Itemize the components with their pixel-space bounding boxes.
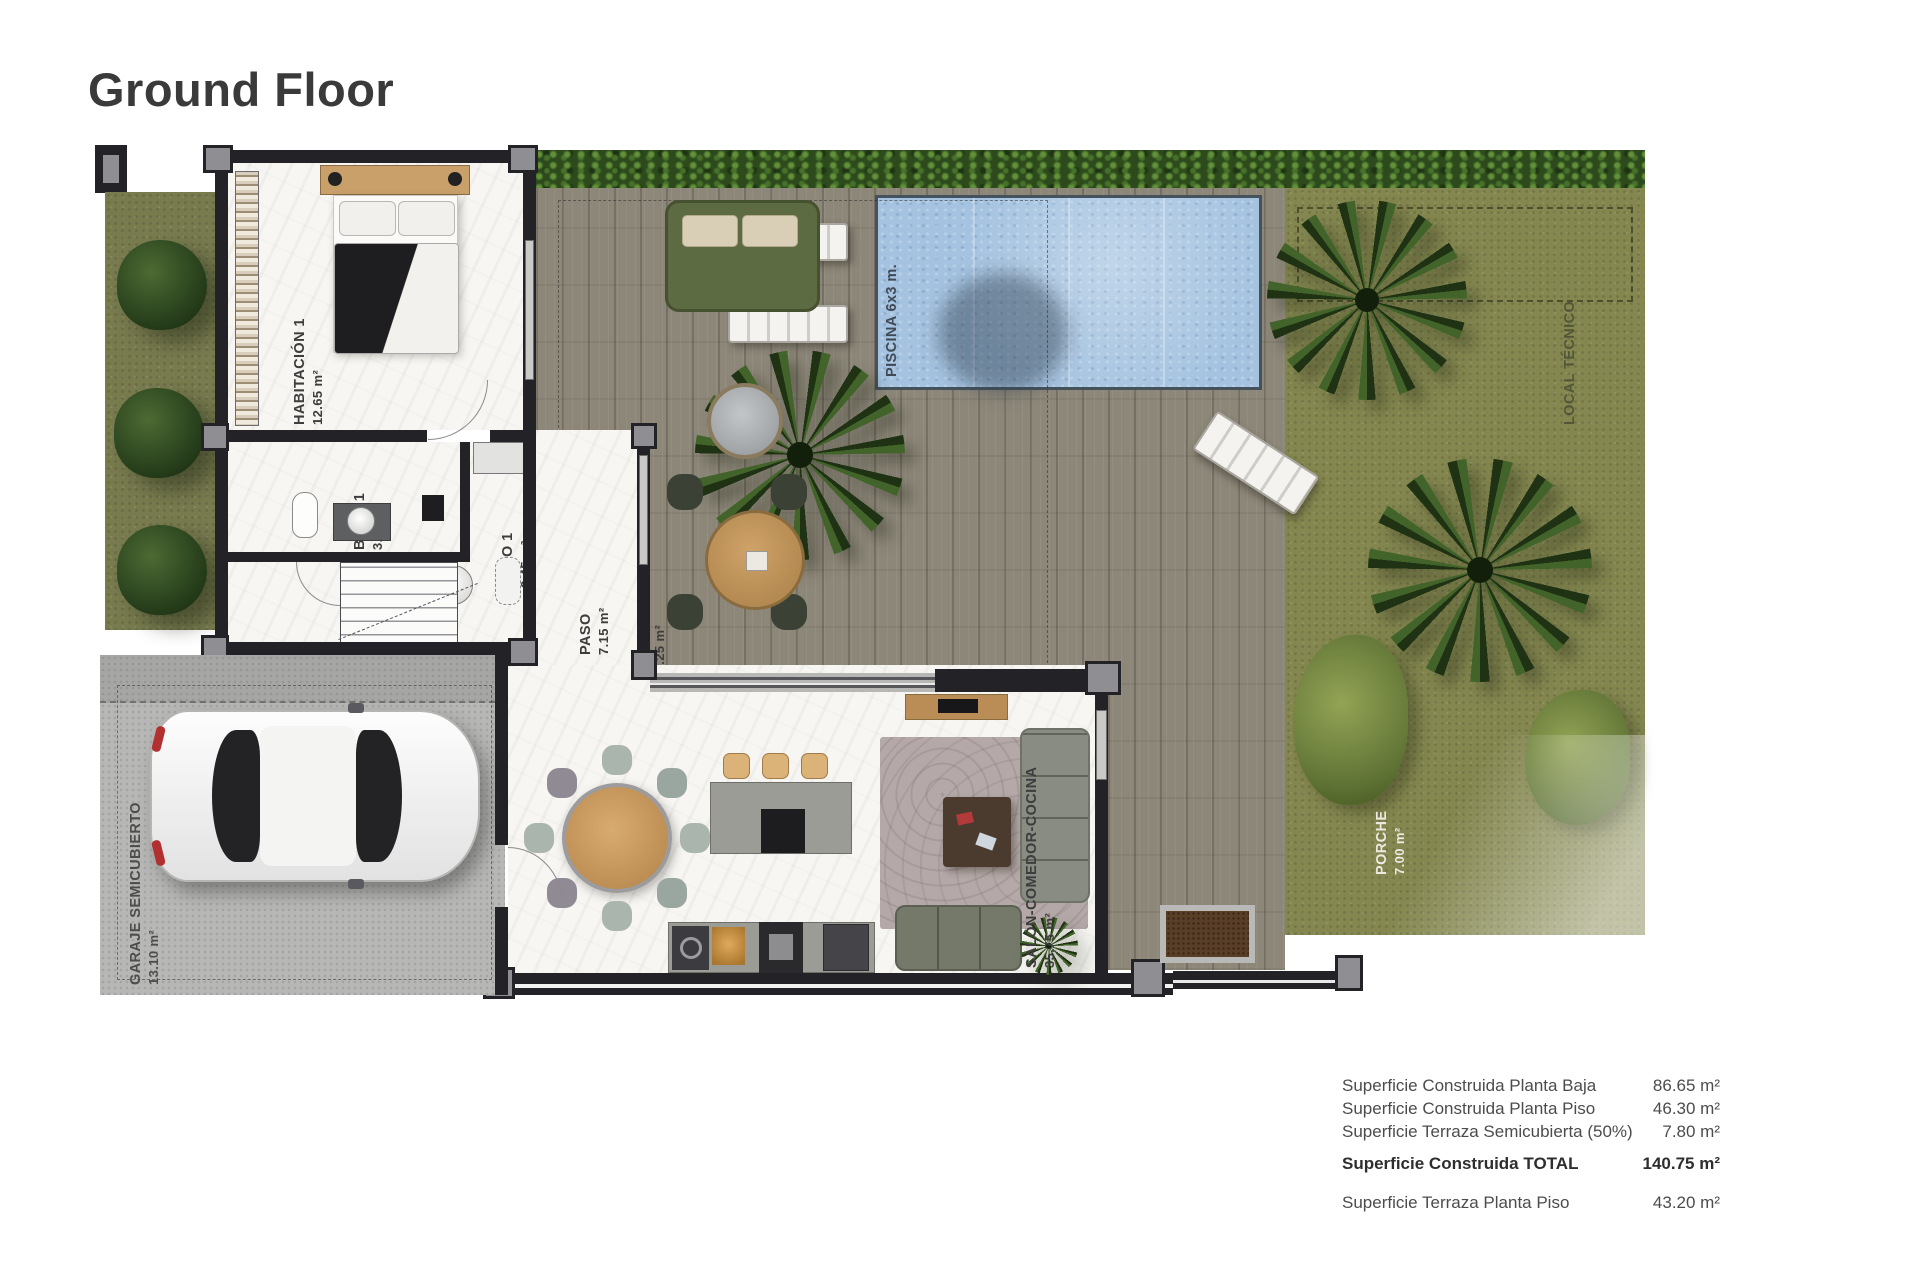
dining-chair <box>680 823 710 853</box>
summary-value: 46.30 m² <box>1653 1097 1720 1120</box>
palm-tree-icon <box>1368 458 1592 682</box>
pillar <box>508 638 538 666</box>
garden-shade <box>1385 735 1645 935</box>
pillar <box>1131 959 1165 997</box>
window <box>525 240 534 380</box>
bar-stool <box>723 753 750 779</box>
kitchen-sink-unit <box>759 922 803 973</box>
sofa <box>895 905 1022 971</box>
outdoor-chair <box>667 594 703 630</box>
car-mirror-icon <box>348 703 364 713</box>
wall <box>490 430 536 442</box>
car-mirror-icon <box>348 879 364 889</box>
summary-value: 43.20 m² <box>1653 1191 1720 1214</box>
dining-chair <box>547 768 577 798</box>
outdoor-sofa <box>665 200 820 312</box>
wall <box>215 150 536 163</box>
dining-chair <box>602 745 632 775</box>
room-label-habitacion: HABITACIÓN 1 12.65 m² <box>291 275 327 425</box>
pillar <box>1085 661 1121 695</box>
wall <box>215 642 536 655</box>
wall <box>1173 971 1345 989</box>
room-label-garaje: GARAJE SEMICUBIERTO 13.10 m² <box>127 790 163 985</box>
room-label-porche: PORCHE 7.00 m² <box>1373 790 1409 875</box>
summary-value: 86.65 m² <box>1653 1074 1720 1097</box>
table-centerpiece <box>746 551 768 571</box>
doormat <box>1160 905 1255 963</box>
wardrobe <box>235 171 259 426</box>
kitchen-cabinet <box>712 927 745 965</box>
outdoor-chair <box>771 474 807 510</box>
pillar <box>631 423 657 449</box>
tv-screen <box>938 699 978 713</box>
wall <box>495 907 508 995</box>
door-arc <box>428 380 488 440</box>
wall <box>215 150 228 655</box>
coffee-table <box>943 797 1011 867</box>
summary-row: Superficie Terraza Planta Piso 43.20 m² <box>1342 1191 1720 1214</box>
sink-bowl <box>769 934 793 960</box>
summary-label: Superficie Construida Planta Baja <box>1342 1074 1596 1097</box>
summary-total-row: Superficie Construida TOTAL 140.75 m² <box>1342 1152 1720 1175</box>
bar-stool <box>762 753 789 779</box>
wall <box>523 442 536 655</box>
summary-row: Superficie Construida Planta Piso 46.30 … <box>1342 1097 1720 1120</box>
summary-value: 7.80 m² <box>1662 1120 1720 1143</box>
floor-plan: LOCAL TÉCNICO PISCINA 6x3 m. <box>95 145 1652 1002</box>
floor-plan-page: Ground Floor LOCAL TÉCNICO PISCINA 6 <box>0 0 1920 1280</box>
summary-value: 140.75 m² <box>1643 1152 1721 1175</box>
summary-row: Superficie Construida Planta Baja 86.65 … <box>1342 1074 1720 1097</box>
wall <box>460 442 470 552</box>
pillar <box>201 423 229 451</box>
island-sink <box>761 809 805 853</box>
outdoor-dining-table <box>705 510 805 610</box>
wall <box>495 655 508 845</box>
car-windshield <box>356 730 402 862</box>
tree-icon <box>114 388 204 478</box>
sofa-cushion <box>682 215 738 247</box>
shower-column <box>422 495 444 521</box>
palm-tree-icon <box>1267 200 1467 400</box>
summary-label: Superficie Terraza Planta Piso <box>1342 1191 1569 1214</box>
pillar <box>1335 955 1363 991</box>
dining-chair <box>657 878 687 908</box>
summary-label: Superficie Terraza Semicubierta (50%) <box>1342 1120 1633 1143</box>
surface-summary: Superficie Construida Planta Baja 86.65 … <box>1342 1074 1720 1214</box>
outdoor-chair <box>667 474 703 510</box>
room-label-salon: SALON-COMEDOR-COCINA 35.75 m² <box>1023 733 1059 968</box>
summary-row: Superficie Terraza Semicubierta (50%) 7.… <box>1342 1120 1720 1143</box>
outdoor-coffee-table <box>707 383 783 459</box>
tree-icon <box>117 525 207 615</box>
car <box>150 710 480 882</box>
porch-door <box>1096 710 1107 780</box>
bed-duvet <box>334 243 459 354</box>
sink <box>347 507 375 535</box>
bedside-lamp-icon <box>328 172 342 186</box>
sliding-glass-door <box>650 673 935 692</box>
bar-stool <box>801 753 828 779</box>
pool-lane-line <box>1163 198 1165 387</box>
magazine <box>975 832 996 850</box>
hedge <box>535 150 1645 188</box>
pillow <box>398 201 455 236</box>
car-rear-window <box>212 730 260 862</box>
page-title: Ground Floor <box>88 62 394 117</box>
wall <box>215 552 470 562</box>
pillar <box>508 145 538 173</box>
window <box>639 455 648 565</box>
cooktop <box>823 924 869 971</box>
toilet <box>495 557 521 605</box>
pillar <box>631 650 657 680</box>
stairs-direction-line <box>338 583 477 640</box>
pool-lane-line <box>1068 198 1070 387</box>
car-roof <box>260 726 356 866</box>
dining-table <box>562 783 672 893</box>
wall <box>935 669 1095 692</box>
wall <box>215 430 427 442</box>
pillar <box>100 152 122 186</box>
room-label-local-tecnico: LOCAL TÉCNICO <box>1561 235 1580 425</box>
summary-label: Superficie Construida Planta Piso <box>1342 1097 1595 1120</box>
summary-label: Superficie Construida TOTAL <box>1342 1152 1578 1175</box>
pillow <box>339 201 396 236</box>
wall <box>493 973 1173 995</box>
dining-chair <box>657 768 687 798</box>
tree-icon <box>117 240 207 330</box>
dining-chair <box>524 823 554 853</box>
washing-machine <box>672 926 709 970</box>
room-label-paso: PASO 7.15 m² <box>577 540 613 655</box>
sofa-cushion <box>742 215 798 247</box>
magazine <box>956 811 974 825</box>
pillar <box>203 145 233 173</box>
washer-door <box>680 937 702 959</box>
bedside-lamp-icon <box>448 172 462 186</box>
toilet <box>292 492 318 538</box>
dining-chair <box>602 901 632 931</box>
